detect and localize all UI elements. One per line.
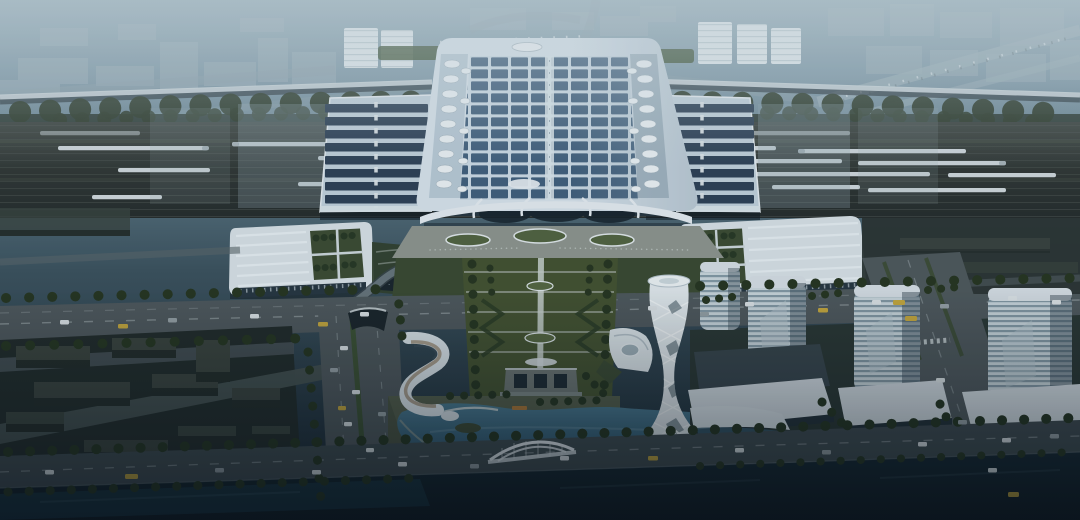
render-canvas xyxy=(0,0,1080,520)
scene-aerial-render xyxy=(0,0,1080,520)
blue-tint-overlay xyxy=(0,0,1080,520)
